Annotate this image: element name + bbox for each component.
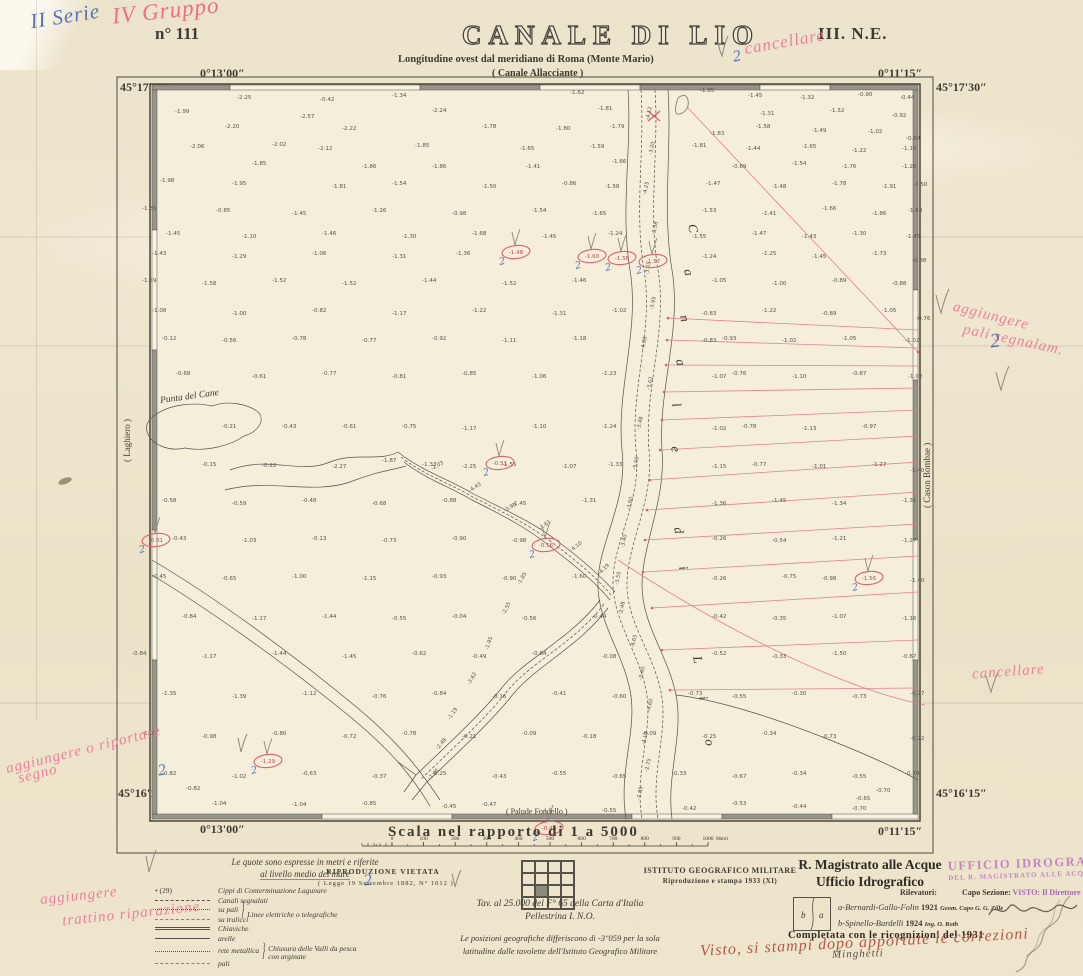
sounding-value: -1.52 (502, 281, 516, 287)
sounding-value: -1.44 (322, 614, 337, 620)
corrected-sounding-value: -1.56 (862, 576, 877, 582)
sounding-value: -0.44 (900, 95, 915, 101)
posizioni-line2: latitudine dalle tavolette dell'Istituto… (463, 946, 657, 956)
legend-brace-note-2b: con arginate (268, 952, 306, 961)
legend-sample-sutralicci (155, 919, 210, 920)
sounding-value: -1.68 (472, 231, 487, 237)
surveyor-row-a: a-Bernardi-Gallo-Folin 1921 Geom. Capo G… (838, 902, 1003, 912)
sounding-value: -1.76 (842, 164, 857, 170)
sounding-value: -0.85 (462, 371, 477, 377)
sounding-value: -1.27 (902, 538, 917, 544)
sounding-value: -1.87 (382, 458, 397, 464)
riproduzione-line2: ( Legge 19 Settembre 1882, N° 1012 ) (318, 880, 454, 887)
sounding-value: -1.10 (792, 374, 807, 380)
sounding-value: -1.06 (532, 374, 547, 380)
sounding-value: -0.21 (462, 734, 477, 740)
rilevatori-label: Rilevatori: (900, 888, 937, 897)
sounding-value: -0.70 (876, 788, 891, 794)
sounding-value: -1.65 (520, 146, 535, 152)
sounding-value: -0.21 (222, 424, 237, 430)
surveyor-b-year: 1924 (905, 918, 922, 928)
surveyor-a-name: a-Bernardi-Gallo-Folin (838, 902, 919, 912)
sounding-value: -1.65 (592, 211, 607, 217)
sounding-value: -1.54 (792, 161, 807, 167)
sounding-value: -1.66 (612, 159, 627, 165)
legend-sample-pali (155, 963, 210, 964)
sounding-value: -1.45 (542, 234, 557, 240)
sounding-value: -1.36 (456, 251, 471, 257)
sounding-value: -0.65 (612, 774, 627, 780)
sounding-value: -0.82 (186, 786, 200, 792)
sounding-value: -0.55 (732, 694, 747, 700)
sounding-value: -1.53 (702, 208, 717, 214)
sounding-value: -0.35 (772, 616, 787, 622)
sounding-value: -0.64 (906, 136, 921, 142)
sounding-value: -0.87 (852, 371, 867, 377)
sounding-value: -0.61 (252, 374, 267, 380)
sounding-value: -1.81 (692, 143, 707, 149)
tav-block: Tav. al 25.000 del F° 65 della Carta d'I… (430, 898, 690, 924)
survey-zone-box: b a (793, 897, 831, 931)
sounding-value: -0.48 (302, 498, 317, 504)
posizioni-line1: Le posizioni geografiche differiscono di… (460, 933, 660, 943)
legend-label: Chiaviche (218, 924, 248, 934)
sounding-value: -0.45 (152, 574, 167, 580)
sounding-value: -1.39 (232, 694, 247, 700)
sounding-value: -2.25 (237, 95, 252, 101)
sounding-value: -0.63 (302, 771, 317, 777)
sounding-value: -1.35 (162, 691, 177, 697)
sounding-value: -1.06 (312, 251, 327, 257)
sounding-value: -1.50 (482, 184, 497, 190)
sounding-value: -1.25 (762, 251, 777, 257)
tav-line1: Tav. al 25.000 del F° 65 della Carta d'I… (477, 899, 644, 909)
sounding-value: -1.73 (872, 251, 887, 257)
sounding-value: -0.16 (492, 694, 507, 700)
legend-sample-rete (155, 951, 210, 952)
riproduzione-block: RIPRODUZIONE VIETATA ( Legge 19 Settembr… (318, 866, 448, 889)
sounding-value: -1.04 (292, 802, 307, 808)
sounding-value: -1.47 (752, 231, 767, 237)
sounding-value: -1.24 (702, 254, 717, 260)
scale-bar-number: 800 (641, 836, 650, 842)
sounding-value: -1.41 (762, 211, 777, 217)
sounding-value: -2.57 (300, 114, 315, 120)
red-line-endpoint (646, 509, 649, 512)
sounding-value: -0.12 (162, 336, 176, 342)
sounding-value: -1.65 (802, 144, 817, 150)
sounding-value: -1.07 (712, 374, 727, 380)
sounding-value: -1.36 (712, 501, 727, 507)
sounding-value: -1.05 (842, 336, 857, 342)
legend-row-chiaviche: Chiaviche (155, 924, 455, 934)
sounding-value: -0.73 (382, 538, 397, 544)
sounding-value: -1.28 (902, 164, 917, 170)
sounding-value: -1.30 (402, 234, 417, 240)
sounding-value: -1.00 (232, 311, 247, 317)
corrected-sounding-value: -0.61 (149, 538, 164, 544)
label-cason-bombae: ( Cason Bombae ) (922, 443, 932, 508)
sounding-value: -1.86 (362, 164, 377, 170)
sounding-value: -0.45 (442, 804, 457, 810)
sounding-value: -1.00 (772, 281, 787, 287)
sounding-value: -0.30 (792, 691, 807, 697)
sounding-value: -1.86 (872, 211, 887, 217)
sounding-value: -1.45 (812, 254, 827, 260)
sounding-value: -0.04 (452, 614, 467, 620)
sounding-value: -1.44 (746, 146, 761, 152)
sounding-value: -1.85 (415, 143, 430, 149)
sounding-value: -1.95 (232, 181, 247, 187)
sounding-value: -1.02 (612, 308, 626, 314)
sounding-value: -0.88 (912, 258, 927, 264)
sounding-value: -0.78 (402, 731, 417, 737)
magistrato-line1: R. Magistrato alle Acque (798, 857, 941, 872)
label-laghiero: ( Laghiero ) (122, 419, 132, 462)
sounding-value: -1.98 (160, 178, 175, 184)
sounding-value: -0.73 (822, 734, 837, 740)
igm-line2: Riproduzione e stampa 1933 (XI) (663, 877, 778, 885)
sounding-value: -0.77 (362, 338, 377, 344)
legend-label: Cippi di Conterminazione Lagunare (218, 886, 327, 896)
sounding-value: -0.42 (320, 97, 334, 103)
faint-signature (1000, 890, 1083, 976)
corrected-sounding-value: -1.48 (509, 250, 524, 256)
sounding-value: -1.41 (526, 164, 541, 170)
sounding-value: -1.52 (830, 108, 844, 114)
sounding-value: -0.77 (322, 371, 337, 377)
sounding-value: -0.26 (712, 536, 727, 542)
sounding-value: -1.16 (902, 616, 917, 622)
sounding-value: -0.18 (582, 734, 597, 740)
sounding-value: -0.58 (162, 498, 177, 504)
sounding-value: -1.52 (272, 278, 286, 284)
sounding-value: -0.76 (916, 316, 931, 322)
sounding-value: -1.17 (202, 654, 217, 660)
legend-row-canali: Canali segnalati (155, 896, 455, 906)
sounding-value: -1.17 (252, 616, 267, 622)
sounding-value: -0.34 (792, 771, 807, 777)
sounding-value: -1.43 (152, 251, 167, 257)
sounding-value: -0.56 (222, 338, 237, 344)
legend-label: pali (218, 959, 230, 969)
sounding-value: -0.42 (712, 614, 726, 620)
sounding-value: -0.93 (432, 574, 447, 580)
sounding-value: -1.05 (712, 278, 727, 284)
legend-sample-supali (155, 909, 210, 910)
sounding-value: -0.80 (272, 731, 287, 737)
sounding-value: -0.81 (392, 374, 407, 380)
legend-sample-cippo: • (29) (155, 886, 210, 896)
scale-caption: Scala nel rapporto di 1 a 5000 (388, 824, 639, 841)
corrected-sounding-value: -1.29 (261, 759, 276, 765)
posizioni-block: Le posizioni geografiche differiscono di… (420, 932, 700, 958)
magistrato-line2: Ufficio Idrografico (816, 874, 924, 889)
sounding-value: -1.34 (392, 93, 407, 99)
sounding-value: -1.86 (432, 164, 447, 170)
surveyor-row-b: b-Spinello-Bardelli 1924 Ing. O. Roth (838, 918, 958, 928)
sounding-value: -0.41 (552, 691, 567, 697)
sounding-value: -0.78 (292, 336, 307, 342)
sounding-value: -0.83 (702, 311, 717, 317)
sounding-value: -0.67 (902, 654, 917, 660)
sounding-value: -1.46 (322, 231, 337, 237)
sounding-value: -1.22 (472, 308, 486, 314)
sounding-value: -1.43 (802, 234, 817, 240)
sounding-value: -0.84 (532, 651, 547, 657)
sounding-value: -0.86 (562, 181, 577, 187)
legend-row-supali: su pali } Linee elettriche o telegrafich… (155, 905, 455, 915)
surveyor-a-year: 1921 (921, 902, 938, 912)
sounding-value: -2.27 (332, 464, 347, 470)
sounding-value: -0.76 (732, 371, 747, 377)
label-palude-fondello: ( Palude Fondello ) (506, 807, 568, 816)
sounding-value: -0.43 (492, 774, 507, 780)
sounding-value: -0.61 (342, 424, 357, 430)
sounding-value: -1.01 (812, 464, 827, 470)
red-line-endpoint (649, 479, 652, 482)
sounding-value: -1.91 (882, 184, 897, 190)
map-interior (152, 86, 918, 819)
red-line-endpoint (651, 607, 654, 610)
sounding-value: -2.02 (272, 142, 286, 148)
sounding-value: -0.22 (262, 463, 276, 469)
corrected-sounding-value: -0.56 (539, 543, 554, 549)
sounding-value: -0.26 (712, 576, 727, 582)
scale-bar-number: 1000 (703, 836, 714, 842)
sounding-value: -0.42 (682, 806, 696, 812)
sounding-value: -0.15 (202, 462, 217, 468)
legend-sample-arelle (155, 938, 210, 939)
sounding-value: -0.52 (712, 651, 726, 657)
sounding-value: -1.31 (552, 311, 567, 317)
sounding-value: -1.02 (712, 426, 726, 432)
sounding-value: -0.08 (602, 654, 617, 660)
sounding-value: -1.68 (908, 208, 923, 214)
sounding-value: -1.22 (762, 308, 776, 314)
sounding-value: -0.47 (482, 802, 497, 808)
sounding-value: -1.21 (832, 536, 847, 542)
sounding-value: -1.66 (822, 206, 837, 212)
corrected-sounding-value: -1.60 (585, 254, 600, 260)
sounding-value: -1.45 (748, 93, 763, 99)
legend-brace: } (241, 897, 244, 922)
sounding-value: -0.90 (452, 536, 467, 542)
legend-row-rete: rete metallica } Chiusura delle Valli da… (155, 943, 455, 959)
sounding-value: -0.59 (232, 501, 247, 507)
sounding-value: -0.92 (892, 113, 906, 119)
sounding-value: -1.31 (902, 498, 917, 504)
sounding-value: -1.04 (212, 801, 227, 807)
sounding-value: -0.90 (502, 576, 517, 582)
sounding-value: -1.45 (906, 234, 921, 240)
sounding-value: -1.45 (292, 211, 307, 217)
sounding-value: -1.81 (598, 106, 613, 112)
riproduzione-line1: RIPRODUZIONE VIETATA (326, 867, 439, 876)
sounding-value: -1.24 (608, 231, 623, 237)
sounding-value: -1.26 (372, 208, 387, 214)
sounding-value: -1.10 (242, 234, 257, 240)
sounding-value: -1.50 (913, 182, 928, 188)
sounding-value: -2.12 (318, 146, 332, 152)
scale-bar-number: 900 (672, 836, 681, 842)
sounding-value: -0.70 (852, 806, 867, 812)
legend-label: rete metallica (218, 946, 259, 956)
sounding-value: -0.67 (732, 774, 747, 780)
sounding-value: -1.17 (392, 311, 407, 317)
sounding-value: -0.98 (512, 538, 527, 544)
sounding-value: -1.55 (692, 234, 707, 240)
sounding-value: -0.78 (742, 424, 757, 430)
survey-zone-a: a (819, 910, 824, 920)
sounding-value: -0.43 (172, 536, 187, 542)
sounding-value: -1.85 (252, 161, 267, 167)
legend-sample-chiaviche (155, 927, 210, 930)
sounding-value: -1.33 (608, 462, 623, 468)
sounding-value: -1.24 (602, 424, 617, 430)
sounding-value: -0.62 (412, 651, 426, 657)
sounding-value: -1.46 (572, 278, 587, 284)
sounding-value: -2.20 (225, 124, 240, 130)
sounding-value: -0.92 (432, 336, 446, 342)
surveyor-b-extra: Ing. O. Roth (925, 921, 959, 928)
sounding-value: -1.31 (760, 111, 775, 117)
sounding-value: -0.98 (452, 211, 467, 217)
sounding-value: -1.60 (572, 574, 587, 580)
sounding-value: -0.55 (552, 771, 567, 777)
sounding-value: -1.48 (772, 184, 787, 190)
sounding-value: -2.06 (190, 144, 205, 150)
sounding-value: -1.79 (610, 124, 625, 130)
sounding-value: -1.58 (202, 281, 217, 287)
sounding-value: -1.15 (362, 576, 377, 582)
sounding-value: -1.81 (332, 184, 347, 190)
sounding-value: -0.13 (312, 536, 327, 542)
sounding-value: -0.33 (672, 771, 687, 777)
sounding-value: -0.55 (392, 616, 407, 622)
sounding-value: -0.56 (522, 616, 537, 622)
sounding-value: -0.53 (732, 801, 747, 807)
sounding-value: -0.89 (832, 278, 847, 284)
sounding-value: -1.31 (392, 254, 407, 260)
sounding-value: -0.09 (522, 731, 537, 737)
sounding-value: -0.84 (182, 614, 197, 620)
sheet-index-current (535, 885, 548, 897)
red-line-endpoint (666, 339, 669, 342)
sounding-value: -1.85 (700, 88, 715, 94)
sounding-value: -0.44 (792, 804, 807, 810)
sounding-value: -0.89 (732, 164, 747, 170)
sounding-value: -0.34 (762, 731, 777, 737)
sounding-value: -0.88 (442, 498, 457, 504)
corrected-sounding-value: -0.51 (493, 461, 508, 467)
corrected-sounding-value: -1.58 (615, 256, 630, 262)
sounding-value: -0.90 (858, 92, 873, 98)
sounding-value: -1.10 (532, 424, 547, 430)
sounding-value: -1.44 (272, 651, 287, 657)
sounding-value: -1.08 (152, 308, 167, 314)
sounding-value: -1.40 (910, 578, 925, 584)
sounding-value: -0.84 (432, 691, 447, 697)
red-line-endpoint (665, 364, 668, 367)
map-sheet: II Serie IV Gruppo n° 111 CANALE DI LIO … (0, 0, 1083, 976)
sounding-value: -0.65 (222, 576, 237, 582)
legend-brace: } (262, 939, 265, 964)
sounding-value: -0.70 (905, 771, 920, 777)
sounding-value: -1.00 (292, 574, 307, 580)
sounding-value: -0.88 (892, 281, 907, 287)
sounding-value: -1.59 (142, 278, 157, 284)
sounding-value: -0.49 (472, 654, 487, 660)
sounding-value: -1.03 (242, 538, 257, 544)
sounding-value: -0.68 (372, 501, 387, 507)
tav-line2: Pellestrina I. N.O. (525, 912, 595, 922)
sounding-value: -0.75 (782, 574, 797, 580)
survey-zone-divider: b a (794, 898, 830, 930)
sounding-value: -1.11 (502, 338, 517, 344)
sounding-value: -1.23 (602, 371, 617, 377)
sounding-value: -0.37 (372, 774, 387, 780)
sounding-value: -1.15 (712, 464, 727, 470)
sounding-value: -1.54 (392, 181, 407, 187)
sounding-value: -1.07 (832, 614, 847, 620)
sounding-value: -1.02 (905, 338, 919, 344)
sounding-value: -0.82 (312, 308, 326, 314)
sounding-value: -0.77 (752, 462, 767, 468)
sounding-value: -0.89 (822, 311, 837, 317)
sounding-value: -1.02 (868, 129, 882, 135)
sounding-value: -0.43 (282, 424, 297, 430)
sounding-value: -1.22 (852, 148, 866, 154)
sounding-value: -1.80 (556, 126, 571, 132)
magistrato-block: R. Magistrato alle Acque Ufficio Idrogra… (790, 856, 950, 890)
sounding-value: -1.02 (782, 338, 796, 344)
sounding-value: -2.22 (342, 126, 356, 132)
sounding-value: -0.72 (910, 736, 924, 742)
sounding-value: -0.54 (772, 538, 787, 544)
sounding-value: -1.31 (582, 498, 597, 504)
sounding-value: -0.55 (852, 774, 867, 780)
sounding-value: -1.07 (562, 464, 577, 470)
red-line-endpoint (661, 649, 664, 652)
red-line-endpoint (669, 689, 672, 692)
sounding-value: -0.60 (612, 694, 627, 700)
sounding-value: -1.18 (572, 336, 587, 342)
sounding-value: -0.98 (202, 734, 217, 740)
sounding-value: -1.83 (710, 131, 725, 137)
sounding-value: -1.54 (532, 208, 547, 214)
legend-label: arelle (218, 934, 235, 944)
red-line-endpoint (917, 351, 920, 354)
sounding-value: -1.29 (232, 254, 247, 260)
sounding-value: -1.12 (302, 691, 316, 697)
sounding-value: -1.32 (800, 95, 814, 101)
sounding-value: -1.49 (812, 128, 827, 134)
surveyor-b-name: b-Spinello-Bardelli (838, 918, 903, 928)
igm-line1: ISTITUTO GEOGRAFICO MILITARE (644, 866, 797, 875)
sounding-value: -1.85 (142, 206, 157, 212)
sounding-value: -1.58 (756, 124, 771, 130)
sounding-value: -1.17 (462, 426, 477, 432)
scale-bar-unit: Metri (716, 836, 729, 842)
sounding-value: -0.55 (602, 808, 617, 814)
red-line-endpoint (661, 419, 664, 422)
red-line-endpoint (659, 449, 662, 452)
legend-sample-canali (155, 900, 210, 901)
sounding-value: -0.75 (402, 424, 417, 430)
sounding-value: -1.45 (342, 654, 357, 660)
sounding-value: -1.44 (422, 278, 437, 284)
